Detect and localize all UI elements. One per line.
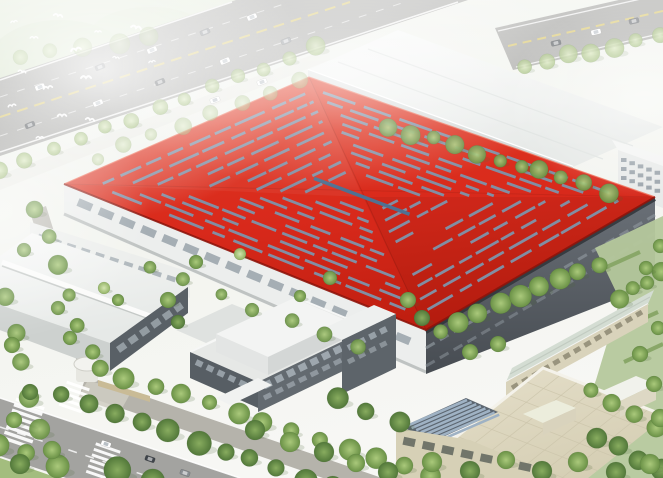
tree	[509, 285, 531, 307]
tree	[6, 412, 22, 428]
tree	[202, 395, 217, 410]
tree	[603, 394, 621, 412]
tree	[156, 419, 179, 442]
tree	[171, 315, 185, 329]
tree	[216, 289, 228, 301]
tree	[234, 248, 246, 260]
tree	[350, 339, 365, 354]
aerial-rendering	[0, 0, 663, 478]
tree	[267, 459, 284, 476]
tree	[160, 292, 176, 308]
tree	[241, 449, 258, 466]
tree	[569, 263, 586, 280]
tree	[43, 441, 61, 459]
tree	[433, 324, 447, 338]
tree	[189, 255, 203, 269]
tree	[187, 431, 212, 456]
tree	[80, 394, 99, 413]
tree	[280, 432, 300, 452]
tree	[632, 346, 648, 362]
tree	[568, 452, 588, 472]
tree	[587, 428, 608, 449]
tree	[112, 294, 124, 306]
tree	[460, 461, 480, 478]
tree	[85, 344, 100, 359]
tree	[294, 290, 306, 302]
tree	[497, 451, 515, 469]
tree	[92, 360, 109, 377]
tree	[626, 281, 640, 295]
tree	[53, 386, 69, 402]
tree	[639, 261, 653, 275]
tree	[490, 336, 506, 352]
tree	[640, 276, 654, 290]
tree	[448, 312, 469, 333]
tree	[317, 327, 333, 343]
tree	[490, 293, 511, 314]
tree	[592, 257, 608, 273]
tree	[640, 454, 660, 474]
tree	[422, 452, 442, 472]
tree	[245, 303, 259, 317]
tree	[347, 454, 365, 472]
tree	[626, 405, 643, 422]
tree	[144, 261, 157, 274]
tree	[529, 276, 549, 296]
tree	[327, 387, 349, 409]
tree	[176, 272, 190, 286]
tree	[357, 403, 374, 420]
tree	[228, 403, 250, 425]
tree	[609, 436, 628, 455]
tree	[285, 313, 299, 327]
tree	[468, 304, 487, 323]
tree	[532, 461, 552, 478]
tree	[113, 368, 135, 390]
tree	[610, 290, 629, 309]
tree	[583, 383, 598, 398]
tree	[22, 384, 38, 400]
tree	[10, 454, 30, 474]
tree	[29, 419, 50, 440]
tree	[462, 344, 478, 360]
tree	[414, 310, 430, 326]
tree	[133, 413, 152, 432]
tree	[515, 160, 528, 173]
tree	[646, 376, 662, 392]
tree	[148, 378, 164, 394]
tree	[323, 271, 337, 285]
tree	[390, 412, 411, 433]
tree	[400, 292, 416, 308]
tree	[218, 444, 235, 461]
tree	[105, 404, 124, 423]
tree	[314, 442, 334, 462]
tree	[651, 321, 663, 335]
factory-campus-scene	[0, 0, 663, 478]
tree	[12, 353, 29, 370]
tree	[171, 384, 190, 403]
tree	[63, 331, 77, 345]
tree	[550, 268, 571, 289]
tree	[245, 420, 265, 440]
